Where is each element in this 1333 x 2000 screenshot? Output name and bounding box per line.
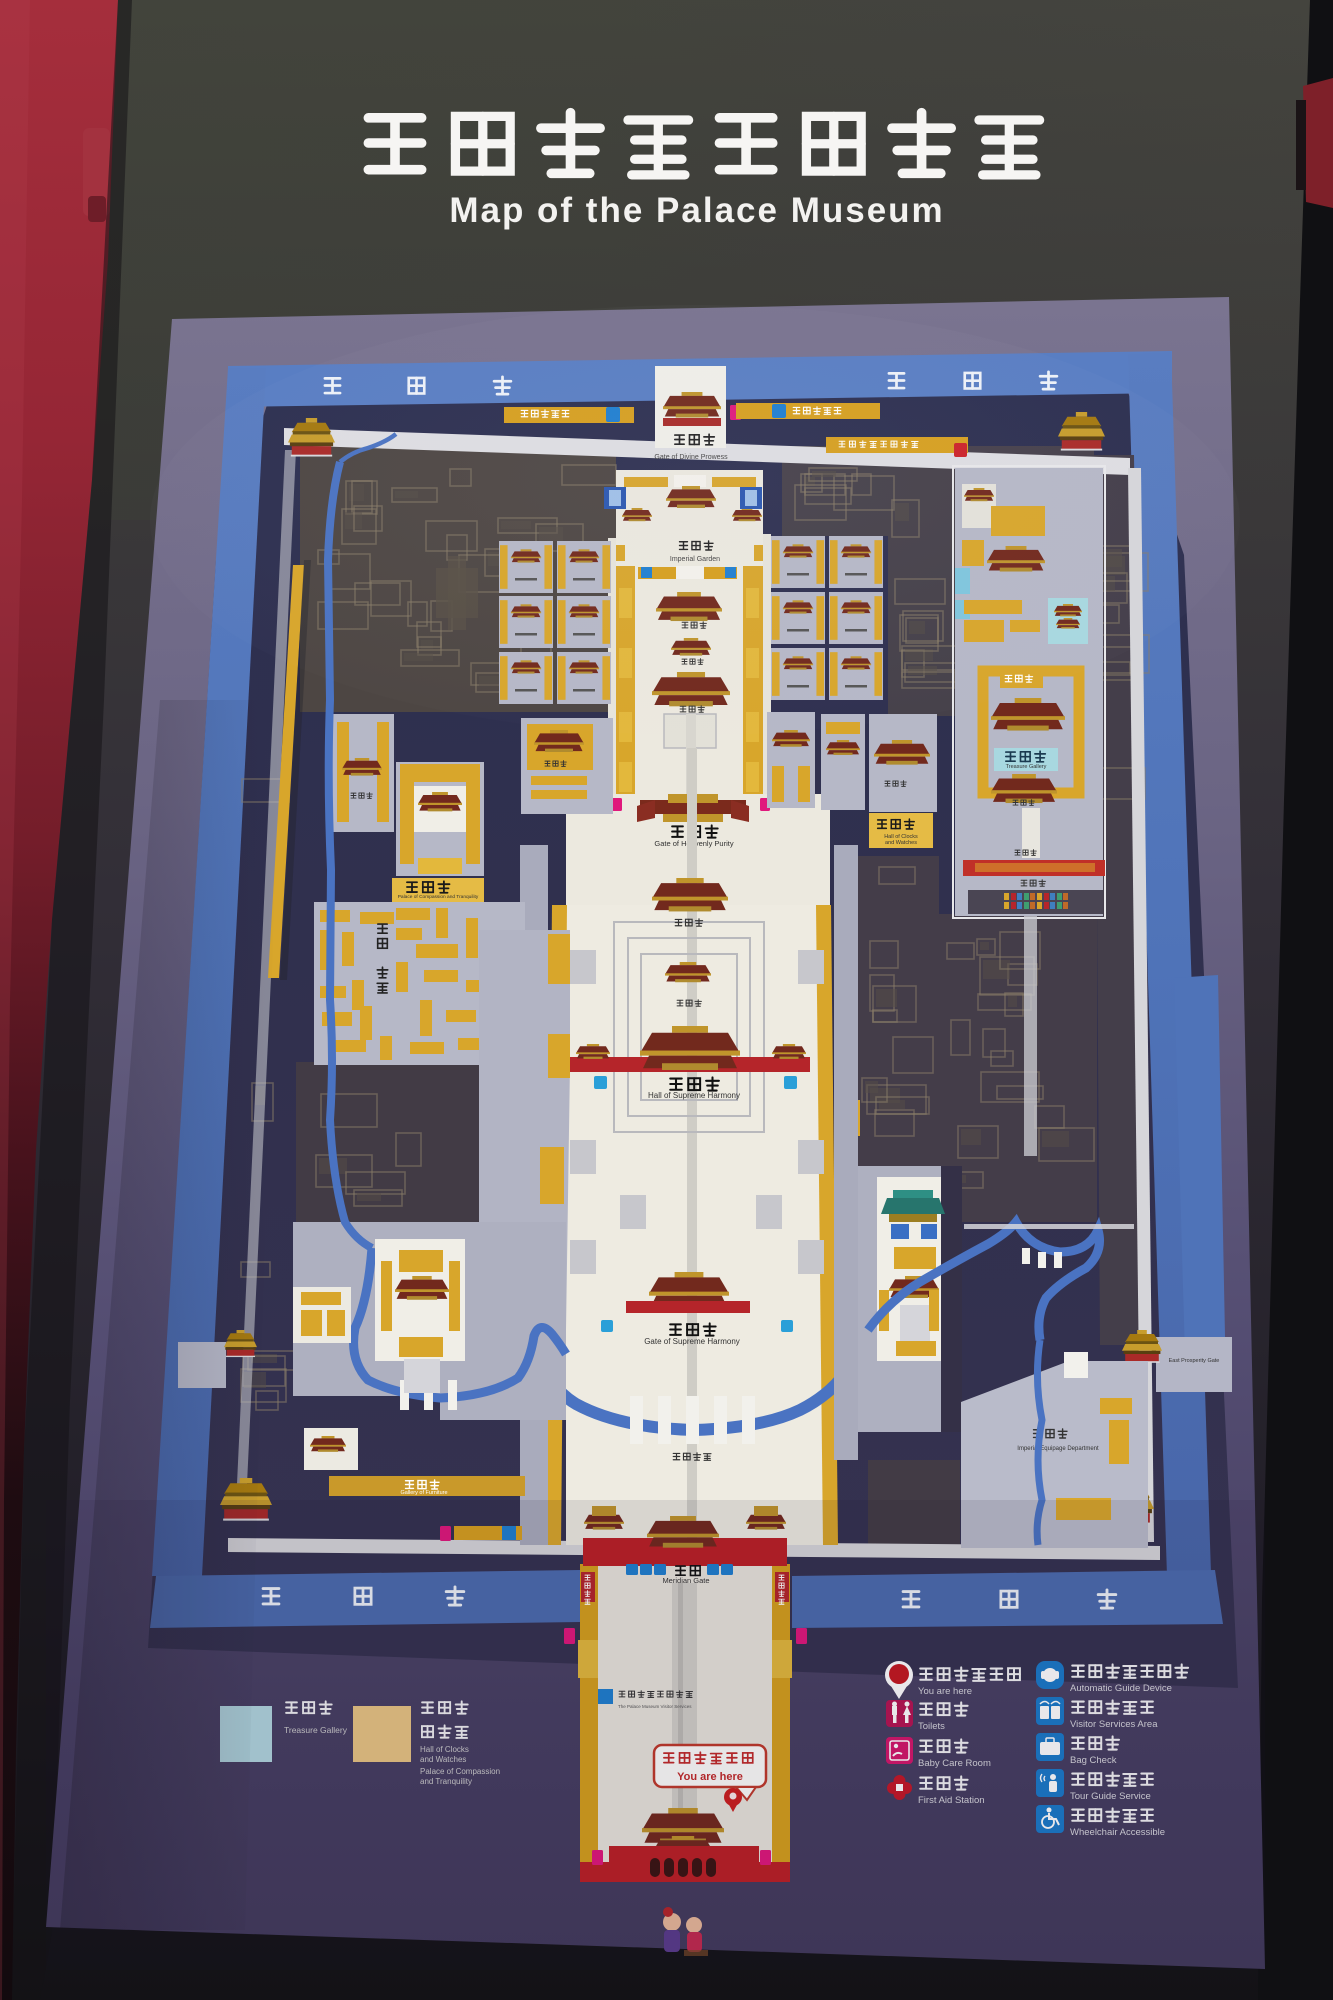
svg-text:East Prosperity Gate: East Prosperity Gate bbox=[1169, 1358, 1220, 1364]
svg-text:Hall of Supreme Harmony: Hall of Supreme Harmony bbox=[648, 1091, 740, 1100]
svg-text:Imperial Equipage Department: Imperial Equipage Department bbox=[1017, 1446, 1099, 1452]
svg-text:Gallery of Furniture: Gallery of Furniture bbox=[400, 1490, 447, 1496]
svg-text:Gate of Supreme Harmony: Gate of Supreme Harmony bbox=[644, 1337, 740, 1346]
svg-text:Palace of Compassion and Tranq: Palace of Compassion and Tranquility bbox=[398, 894, 479, 900]
svg-text:Treasure Gallery: Treasure Gallery bbox=[1006, 764, 1047, 770]
svg-text:and Watches: and Watches bbox=[885, 840, 917, 846]
svg-text:Map of the Palace Museum: Map of the Palace Museum bbox=[449, 191, 944, 230]
